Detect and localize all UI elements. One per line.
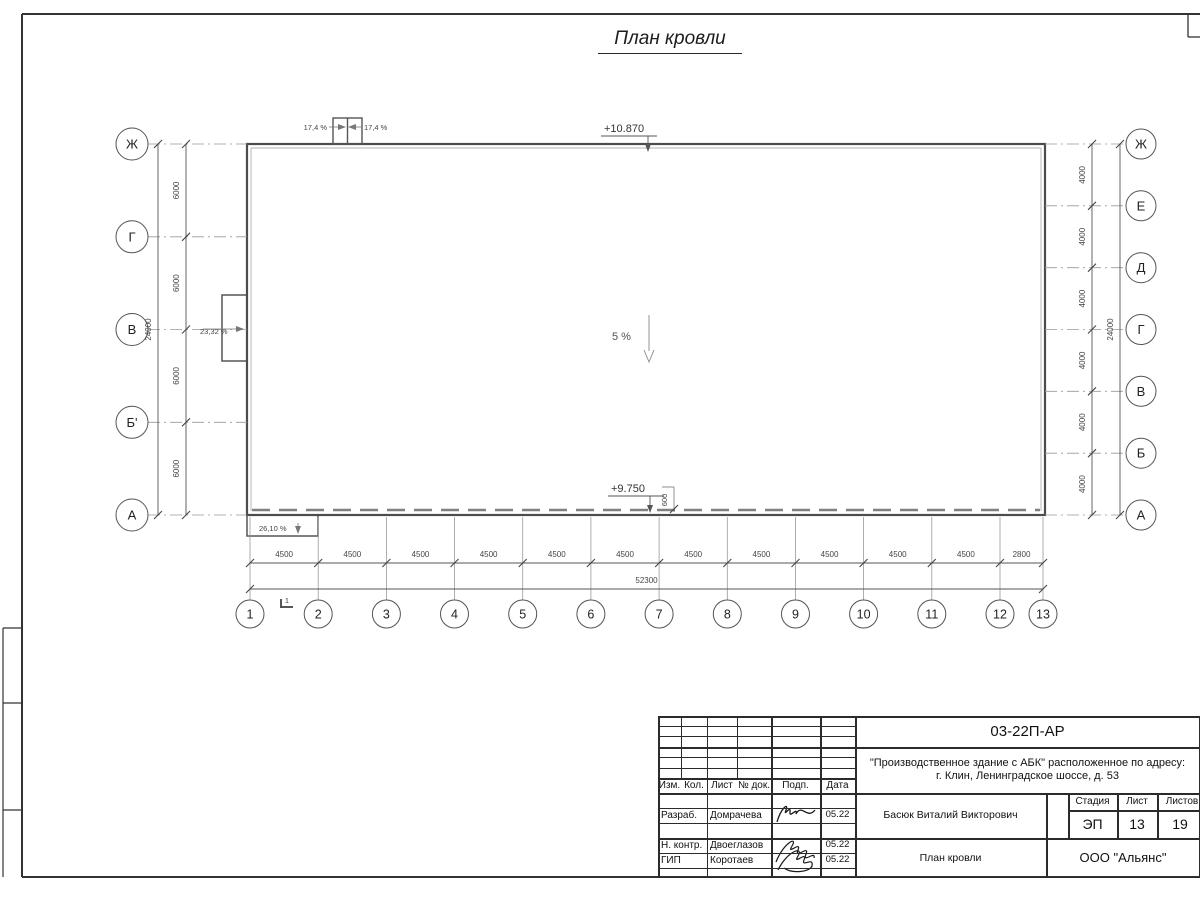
dim-seg-right: 4000 bbox=[1078, 413, 1087, 431]
building-outline bbox=[222, 118, 1045, 536]
titleblock-line bbox=[1068, 810, 1200, 812]
dim-seg-right: 4000 bbox=[1078, 351, 1087, 369]
row-razrab-role: Разраб. bbox=[658, 808, 710, 823]
axis-label: Д bbox=[1137, 260, 1146, 275]
row-razrab-date: 05.22 bbox=[820, 808, 855, 823]
axis-label: В bbox=[128, 322, 137, 337]
col-podp: Подп. bbox=[771, 778, 820, 793]
row-nkontr-date: 05.22 bbox=[820, 838, 855, 853]
roof-perimeter bbox=[247, 144, 1045, 515]
titleblock-line bbox=[658, 747, 1200, 749]
titleblock-line bbox=[1157, 793, 1159, 838]
dim-seg-left: 6000 bbox=[172, 366, 181, 384]
col-ndok: № док. bbox=[737, 778, 771, 793]
axis-label: 1 bbox=[247, 608, 254, 622]
titleblock-line bbox=[658, 778, 855, 780]
axis-label: А bbox=[128, 508, 137, 523]
titleblock-line bbox=[658, 726, 855, 727]
titleblock-line bbox=[1046, 793, 1048, 878]
dim-seg-bottom: 4500 bbox=[548, 550, 566, 559]
axis-label: 5 bbox=[519, 608, 526, 622]
titleblock-line bbox=[658, 793, 1200, 795]
axis-label: 4 bbox=[451, 608, 458, 622]
titleblock-line bbox=[658, 736, 855, 737]
titleblock-line bbox=[658, 823, 855, 824]
row-nkontr-role: Н. контр. bbox=[658, 838, 710, 853]
sheets-label: Листов bbox=[1157, 793, 1200, 810]
dim-seg-bottom: 4500 bbox=[684, 550, 702, 559]
approver-name: Басюк Виталий Викторович bbox=[855, 793, 1046, 838]
drawing-title: План кровли bbox=[855, 838, 1046, 878]
title-block: 03-22П-АР "Производственное здание с АБК… bbox=[658, 716, 1200, 878]
titleblock-line bbox=[658, 868, 855, 869]
row-gip-role: ГИП bbox=[658, 853, 710, 868]
titleblock-line bbox=[1068, 793, 1070, 838]
stage-label: Стадия bbox=[1068, 793, 1117, 810]
dim-seg-bottom: 4500 bbox=[412, 550, 430, 559]
dim-seg-bottom: 2800 bbox=[1013, 550, 1031, 559]
dim-total-bottom: 52300 bbox=[635, 576, 658, 585]
axis-label: 10 bbox=[857, 608, 871, 622]
titleblock-line bbox=[658, 768, 855, 769]
axes-bottom: 1234567891011121345004500450045004500450… bbox=[236, 517, 1057, 628]
dim-seg-bottom: 4500 bbox=[957, 550, 975, 559]
axis-label: Ж bbox=[1135, 137, 1147, 152]
project-name: "Производственное здание с АБК" располож… bbox=[855, 747, 1200, 793]
row-razrab-name: Домрачева bbox=[707, 808, 774, 823]
dim-seg-right: 4000 bbox=[1078, 289, 1087, 307]
elevation-bottom: +9.750 bbox=[611, 483, 645, 495]
row-nkontr-name: Двоеглазов bbox=[707, 838, 774, 853]
titleblock-line bbox=[658, 853, 855, 854]
dim-seg-bottom: 4500 bbox=[753, 550, 771, 559]
slope-center: 5 % bbox=[612, 331, 631, 343]
dim-seg-left: 6000 bbox=[172, 459, 181, 477]
row-gip-name: Коротаев bbox=[707, 853, 774, 868]
dim-seg-right: 4000 bbox=[1078, 227, 1087, 245]
axis-label: Е bbox=[1137, 198, 1146, 213]
axis-label: 8 bbox=[724, 608, 731, 622]
axis-label: 3 bbox=[383, 608, 390, 622]
row-gip-date: 05.22 bbox=[820, 853, 855, 868]
axis-label: 11 bbox=[925, 608, 938, 622]
dim-total-left: 24000 bbox=[144, 318, 153, 341]
axis-label: Г bbox=[128, 229, 135, 244]
dim-seg-left: 6000 bbox=[172, 181, 181, 199]
titleblock-line bbox=[658, 838, 1200, 840]
dim-seg-bottom: 4500 bbox=[480, 550, 498, 559]
axis-label: В bbox=[1137, 384, 1146, 399]
axes-right: ЖЕДГВБА40004000400040004000400024000 bbox=[1045, 129, 1156, 530]
project-name-line1: "Производственное здание с АБК" располож… bbox=[870, 757, 1185, 770]
col-izm: Изм. bbox=[658, 778, 681, 793]
dim-seg-bottom: 4500 bbox=[616, 550, 634, 559]
col-list: Лист bbox=[707, 778, 737, 793]
dim-seg-bottom: 4500 bbox=[343, 550, 361, 559]
slope-shaft-right: 17,4 % bbox=[364, 123, 388, 132]
elevation-top: +10.870 bbox=[604, 123, 644, 135]
project-name-line2: г. Клин, Ленинградское шоссе, д. 53 bbox=[936, 770, 1119, 783]
dim-seg-bottom: 4500 bbox=[821, 550, 839, 559]
sheet-label: Лист bbox=[1117, 793, 1157, 810]
axis-label: Ж bbox=[126, 137, 138, 152]
page-title: План кровли bbox=[540, 28, 800, 54]
dim-seg-right: 4000 bbox=[1078, 475, 1087, 493]
sheet-value: 13 bbox=[1117, 810, 1157, 838]
axis-label: 12 bbox=[993, 608, 1007, 622]
axis-label: 2 bbox=[315, 608, 322, 622]
col-kol: Кол. bbox=[681, 778, 707, 793]
company-name: ООО "Альянс" bbox=[1046, 838, 1200, 878]
axis-label: 9 bbox=[792, 608, 799, 622]
dim-seg-right: 4000 bbox=[1078, 165, 1087, 183]
arrowhead bbox=[338, 124, 346, 130]
dim-seg-bottom: 4500 bbox=[275, 550, 293, 559]
dim-seg-bottom: 4500 bbox=[889, 550, 907, 559]
axis-label: А bbox=[1137, 508, 1146, 523]
axis-label: 13 bbox=[1036, 608, 1050, 622]
section-mark: 1 bbox=[285, 598, 289, 605]
doc-number: 03-22П-АР bbox=[855, 716, 1200, 747]
titleblock-line bbox=[658, 877, 1200, 879]
titleblock-line bbox=[1117, 793, 1119, 838]
col-data: Дата bbox=[820, 778, 855, 793]
titleblock-line bbox=[658, 716, 1200, 718]
axis-label: 6 bbox=[587, 608, 594, 622]
titleblock-line bbox=[658, 757, 855, 758]
slope-left-wall: 23,32 % bbox=[200, 327, 228, 336]
titleblock-line bbox=[658, 808, 855, 809]
dim-seg-left: 6000 bbox=[172, 274, 181, 292]
axis-label: Г bbox=[1137, 322, 1144, 337]
axis-label: 7 bbox=[656, 608, 663, 622]
arrowhead bbox=[348, 124, 356, 130]
stage-value: ЭП bbox=[1068, 810, 1117, 838]
slope-canopy: 26,10 % bbox=[259, 524, 287, 533]
titleblock-line bbox=[855, 716, 857, 878]
axis-label: Б bbox=[1137, 446, 1146, 461]
sheets-value: 19 bbox=[1157, 810, 1200, 838]
dim-total-right: 24000 bbox=[1106, 318, 1115, 341]
slope-shaft-left: 17,4 % bbox=[304, 123, 328, 132]
axis-label: Б' bbox=[126, 415, 137, 430]
dim-600: 600 bbox=[660, 494, 669, 507]
drawing-sheet: { "sheet": { "title": "План кровли" }, "… bbox=[0, 0, 1200, 900]
